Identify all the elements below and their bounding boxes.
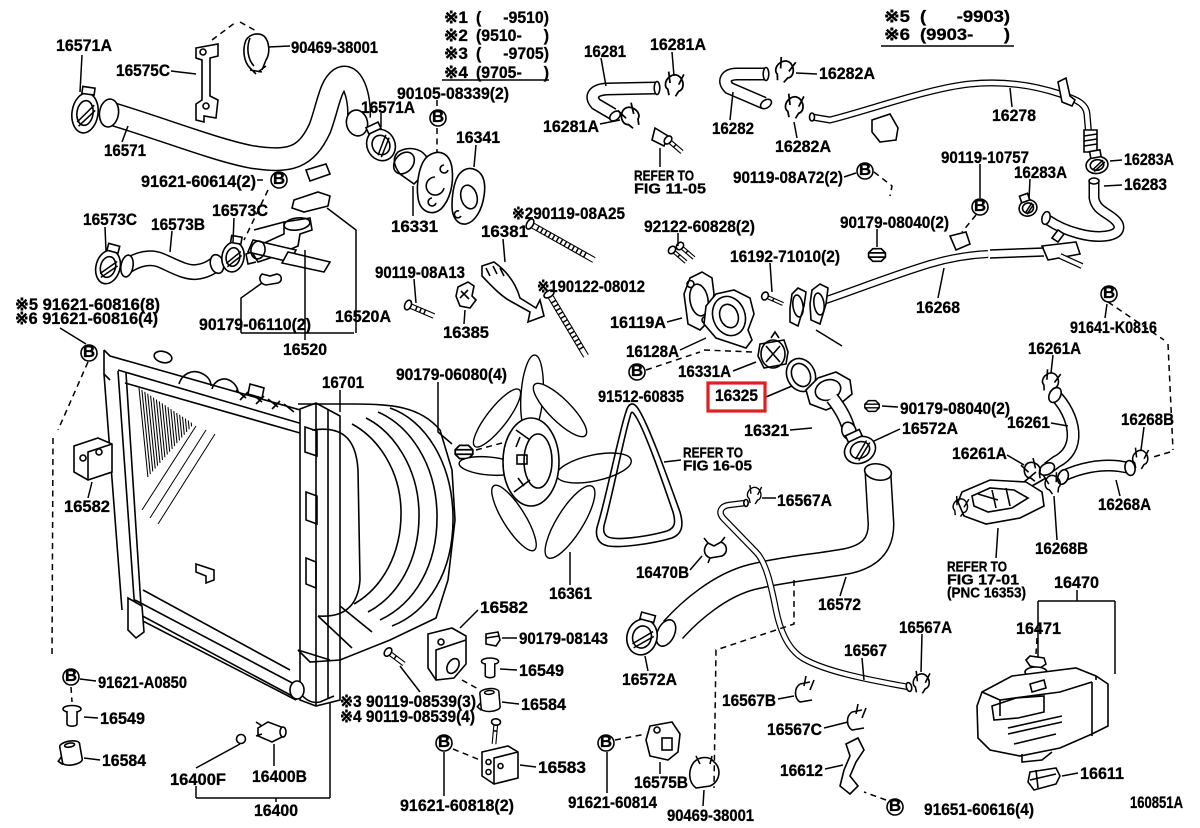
- svg-text:FIG 16-05: FIG 16-05: [683, 459, 752, 475]
- svg-text:( -9510): ( -9510): [476, 8, 549, 27]
- svg-text:91621-60818(2): 91621-60818(2): [400, 796, 514, 815]
- svg-text:16128A: 16128A: [626, 342, 679, 361]
- svg-text:16470: 16470: [1054, 573, 1099, 592]
- svg-text:(9510- ): (9510- ): [476, 26, 549, 45]
- svg-text:16573C: 16573C: [83, 210, 137, 229]
- svg-text:90179-08143: 90179-08143: [519, 629, 608, 648]
- svg-text:16567A: 16567A: [899, 618, 952, 637]
- svg-text:91641-K0816: 91641-K0816: [1070, 318, 1157, 337]
- svg-text:16582: 16582: [64, 497, 110, 516]
- svg-text:※290119-08A25: ※290119-08A25: [512, 204, 625, 223]
- svg-text:16584: 16584: [102, 751, 146, 770]
- svg-text:※6 91621-60816(4): ※6 91621-60816(4): [15, 309, 158, 328]
- svg-text:16283: 16283: [1124, 175, 1167, 194]
- svg-text:16331A: 16331A: [678, 362, 731, 381]
- svg-text:※2: ※2: [444, 26, 468, 45]
- svg-text:16282A: 16282A: [819, 64, 875, 83]
- svg-text:90119-08A72(2): 90119-08A72(2): [733, 168, 843, 187]
- svg-text:16572A: 16572A: [622, 670, 677, 689]
- svg-text:16400F: 16400F: [170, 770, 226, 789]
- svg-text:16573C: 16573C: [212, 201, 268, 220]
- svg-text:91621-A0850: 91621-A0850: [98, 673, 187, 692]
- svg-text:16582: 16582: [480, 598, 528, 617]
- svg-text:90105-08339(2): 90105-08339(2): [397, 84, 509, 103]
- svg-text:B: B: [889, 796, 901, 815]
- svg-text:16567C: 16567C: [767, 720, 822, 739]
- svg-text:16549: 16549: [519, 661, 564, 680]
- svg-text:16361: 16361: [549, 584, 592, 603]
- svg-text:B: B: [432, 107, 444, 126]
- svg-text:16281A: 16281A: [543, 117, 599, 136]
- svg-text:91651-60616(4): 91651-60616(4): [924, 800, 1034, 819]
- svg-text:16400B: 16400B: [252, 767, 307, 786]
- svg-text:16268A: 16268A: [1098, 495, 1151, 514]
- svg-text:90119-08A13: 90119-08A13: [375, 263, 465, 282]
- svg-text:16567: 16567: [844, 641, 887, 660]
- svg-text:16520: 16520: [283, 340, 327, 359]
- svg-text:※1: ※1: [444, 8, 468, 27]
- svg-text:※190122-08012: ※190122-08012: [537, 277, 645, 296]
- svg-text:160851A: 160851A: [1130, 793, 1183, 812]
- svg-text:FIG 11-05: FIG 11-05: [634, 182, 706, 198]
- svg-text:( -9705): ( -9705): [476, 44, 549, 63]
- svg-text:16471: 16471: [1016, 619, 1061, 638]
- svg-text:※6: ※6: [884, 25, 910, 44]
- svg-text:16381: 16381: [481, 222, 528, 241]
- svg-text:16192-71010(2): 16192-71010(2): [730, 247, 840, 266]
- svg-text:91621-60614(2): 91621-60614(2): [141, 172, 256, 191]
- svg-text:92122-60828(2): 92122-60828(2): [644, 217, 755, 236]
- svg-text:90179-08040(2): 90179-08040(2): [840, 213, 949, 232]
- svg-text:91512-60835: 91512-60835: [598, 387, 684, 406]
- svg-text:16268: 16268: [916, 298, 960, 317]
- svg-text:16278: 16278: [992, 106, 1036, 125]
- svg-text:※5: ※5: [884, 7, 910, 26]
- svg-text:90179-06110(2): 90179-06110(2): [199, 315, 311, 334]
- svg-text:90469-38001: 90469-38001: [667, 806, 754, 825]
- svg-text:16567B: 16567B: [722, 691, 776, 710]
- svg-text:( -9903): ( -9903): [920, 7, 1010, 26]
- svg-text:16261A: 16261A: [952, 444, 1007, 463]
- svg-text:16385: 16385: [443, 323, 489, 342]
- svg-text:16571A: 16571A: [56, 36, 112, 55]
- svg-text:※4 90119-08539(4): ※4 90119-08539(4): [340, 707, 475, 726]
- svg-text:16520A: 16520A: [335, 307, 391, 326]
- svg-text:90179-08040(2): 90179-08040(2): [900, 399, 1010, 418]
- svg-text:B: B: [631, 361, 643, 380]
- svg-text:16584: 16584: [521, 695, 567, 714]
- svg-text:(9903- ): (9903- ): [920, 25, 1010, 44]
- svg-text:16268B: 16268B: [1035, 539, 1088, 558]
- svg-text:16282A: 16282A: [775, 137, 831, 156]
- svg-text:16583: 16583: [538, 758, 586, 777]
- svg-text:16261: 16261: [1007, 413, 1050, 432]
- svg-text:16572A: 16572A: [902, 419, 958, 438]
- svg-text:16281A: 16281A: [650, 35, 706, 54]
- svg-text:16575B: 16575B: [634, 773, 688, 792]
- svg-text:16283A: 16283A: [1014, 163, 1067, 182]
- svg-text:16281: 16281: [584, 42, 626, 61]
- svg-text:16321: 16321: [744, 421, 789, 440]
- svg-text:16701: 16701: [322, 373, 364, 392]
- svg-text:16611: 16611: [1080, 764, 1124, 783]
- svg-text:16331: 16331: [391, 217, 438, 236]
- svg-text:(9705- ): (9705- ): [476, 63, 549, 82]
- svg-text:16575C: 16575C: [116, 61, 170, 80]
- svg-text:90179-06080(4): 90179-06080(4): [396, 365, 507, 384]
- svg-text:16325: 16325: [715, 386, 758, 405]
- svg-text:16400: 16400: [254, 801, 298, 820]
- svg-text:16261A: 16261A: [1028, 339, 1081, 358]
- svg-text:16341: 16341: [456, 128, 500, 147]
- svg-text:16549: 16549: [100, 709, 145, 728]
- svg-text:B: B: [438, 732, 450, 751]
- svg-text:B: B: [273, 169, 285, 188]
- svg-text:16470B: 16470B: [636, 563, 689, 582]
- svg-text:B: B: [65, 666, 77, 685]
- svg-text:※4: ※4: [444, 63, 469, 82]
- svg-text:90469-38001: 90469-38001: [291, 38, 378, 57]
- svg-text:91621-60814: 91621-60814: [568, 793, 657, 812]
- svg-text:16268B: 16268B: [1121, 410, 1174, 429]
- svg-text:16573B: 16573B: [151, 215, 205, 234]
- svg-text:16572: 16572: [818, 595, 861, 614]
- svg-text:(PNC 16353): (PNC 16353): [947, 586, 1026, 602]
- svg-text:B: B: [859, 160, 871, 179]
- svg-text:16283A: 16283A: [1124, 150, 1174, 169]
- svg-text:16567A: 16567A: [777, 491, 832, 510]
- svg-text:B: B: [1103, 283, 1115, 302]
- svg-text:16282: 16282: [712, 119, 754, 138]
- svg-text:B: B: [83, 342, 95, 361]
- svg-text:B: B: [974, 196, 986, 215]
- svg-text:16612: 16612: [780, 761, 823, 780]
- svg-text:B: B: [600, 732, 612, 751]
- svg-text:16571: 16571: [104, 141, 146, 160]
- svg-text:※3: ※3: [444, 44, 468, 63]
- svg-text:16119A: 16119A: [610, 313, 666, 332]
